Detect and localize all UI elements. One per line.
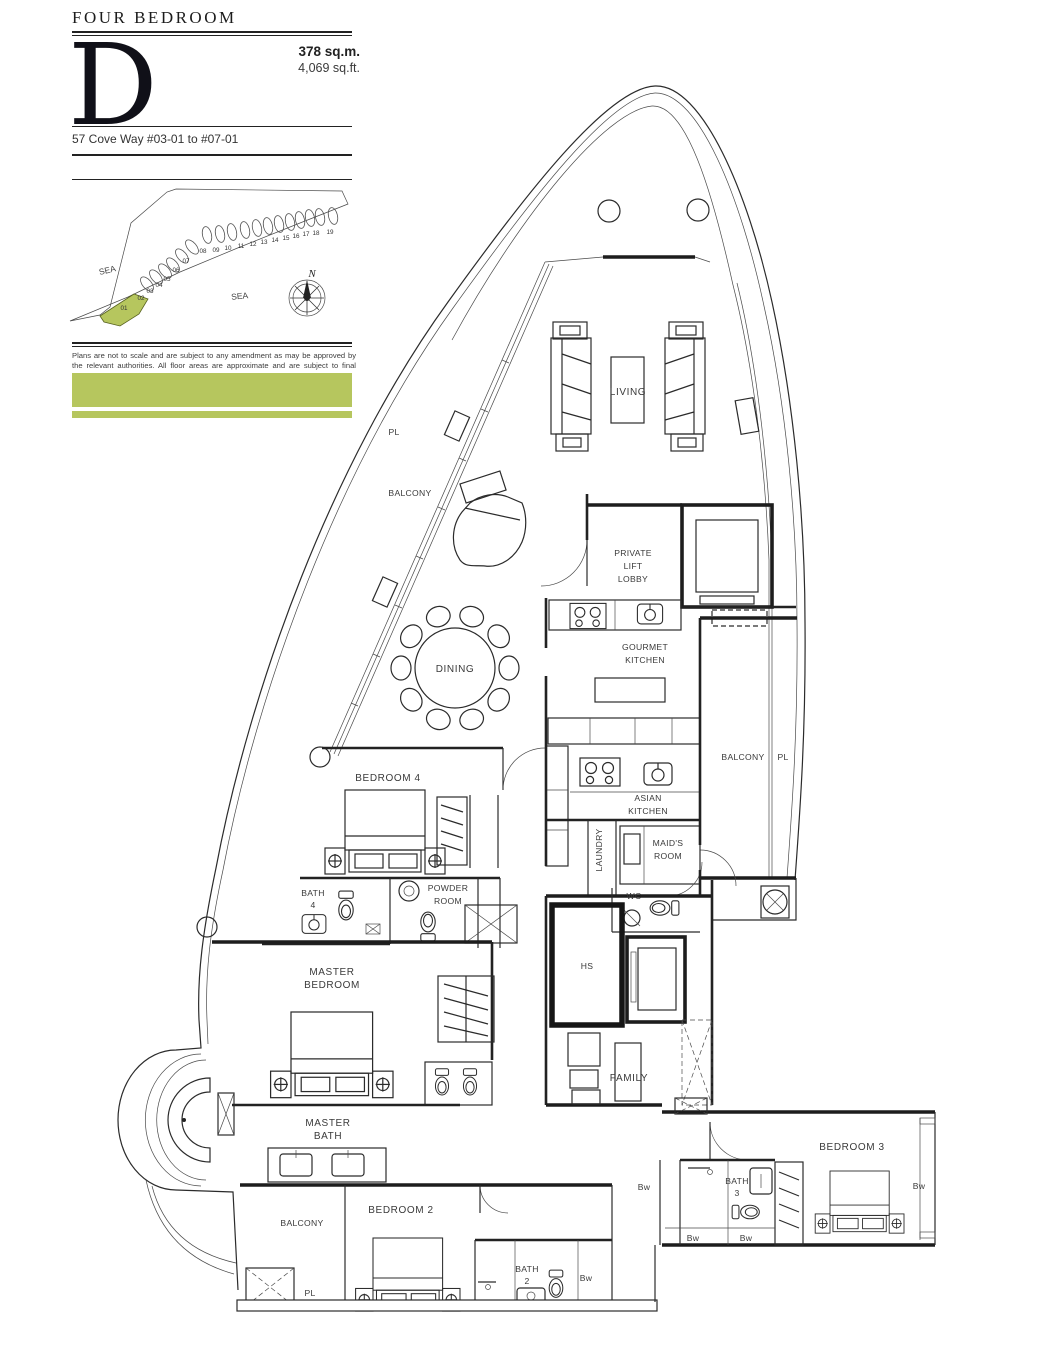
label-living: LIVING — [610, 387, 646, 398]
sea-label-left: SEA — [98, 263, 117, 277]
unit-number: 19 — [326, 229, 334, 236]
lift-lobby — [541, 494, 796, 626]
label-bw: Bw — [687, 1233, 700, 1243]
label-family: FAMILY — [610, 1073, 648, 1084]
label-bedroom3: BEDROOM 3 — [819, 1142, 884, 1153]
unit-number: 03 — [146, 288, 154, 295]
room-labels: LIVING PRIVATE LIFT LOBBY GOURMET KITCHE… — [280, 387, 925, 1298]
label-hs: HS — [581, 961, 594, 971]
balcony-rail2 — [737, 283, 772, 878]
sea-label-right: SEA — [231, 290, 249, 302]
svg-text:4: 4 — [310, 900, 315, 910]
unit-number: 12 — [249, 241, 257, 248]
unit-number: 17 — [302, 231, 310, 238]
site-map: 01 02 03 04 05 06 07 08 09 10 11 12 13 1… — [70, 189, 348, 326]
label-bedroom4: BEDROOM 4 — [355, 773, 420, 784]
label-pl-bottom: PL — [304, 1288, 315, 1298]
svg-text:KITCHEN: KITCHEN — [625, 655, 665, 665]
label-balcony-right: BALCONY — [721, 752, 764, 762]
svg-text:ROOM: ROOM — [654, 851, 682, 861]
svg-text:LOBBY: LOBBY — [618, 574, 648, 584]
unit-number: 09 — [212, 247, 220, 254]
label-master-bath: MASTER — [305, 1118, 350, 1129]
label-bw: Bw — [638, 1182, 651, 1192]
svg-text:3: 3 — [734, 1188, 739, 1198]
bath4-powder — [262, 878, 517, 948]
accent-bar-thin — [72, 411, 352, 418]
label-bath4: BATH — [301, 888, 324, 898]
label-bath2: BATH — [515, 1264, 538, 1274]
unit-number: 05 — [163, 276, 171, 283]
accent-bar-thick — [72, 373, 352, 407]
floor-plan-brochure-page: FOUR BEDROOM D 378 sq.m. 4,069 sq.ft. 57… — [0, 0, 1044, 1370]
second-lift — [627, 937, 685, 1022]
unit-number: 18 — [312, 230, 320, 237]
bottom-rooms — [237, 1185, 657, 1311]
svg-text:BATH: BATH — [314, 1131, 342, 1142]
site-boundary — [70, 189, 348, 321]
unit-number: 04 — [155, 282, 163, 289]
label-balcony-bottom: BALCONY — [280, 1218, 323, 1228]
bedroom4 — [300, 748, 545, 878]
bath3 — [660, 1160, 803, 1245]
label-bw: Bw — [740, 1233, 753, 1243]
svg-text:KITCHEN: KITCHEN — [628, 806, 668, 816]
label-laundry: LAUNDRY — [594, 828, 604, 871]
label-master-bedroom: MASTER — [309, 967, 354, 978]
inner-curtain-wall — [452, 106, 733, 340]
core-walls — [500, 598, 546, 948]
bedroom3-wing — [662, 1098, 935, 1245]
drawing-canvas: 01 02 03 04 05 06 07 08 09 10 11 12 13 1… — [0, 0, 1044, 1370]
label-gourmet-kitchen: GOURMET — [622, 642, 668, 652]
label-pl-right: PL — [777, 752, 788, 762]
label-asian-kitchen: ASIAN — [634, 793, 661, 803]
master-bath — [168, 1078, 386, 1182]
balcony-rail — [733, 285, 769, 878]
label-bw: Bw — [913, 1181, 926, 1191]
svg-text:LIFT: LIFT — [624, 561, 643, 571]
unit-number: 10 — [224, 245, 232, 252]
label-bath3: BATH — [725, 1176, 748, 1186]
unit-number: 07 — [182, 258, 190, 265]
unit-number: 16 — [292, 233, 300, 240]
unit-number: 01 — [120, 305, 128, 312]
unit-number: 11 — [238, 243, 245, 250]
label-bw: Bw — [580, 1273, 593, 1283]
label-dining: DINING — [436, 664, 475, 675]
label-bedroom2: BEDROOM 2 — [368, 1205, 433, 1216]
svg-text:2: 2 — [524, 1276, 529, 1286]
label-powder-room: POWDER — [428, 883, 468, 893]
unit-number: 08 — [199, 248, 207, 255]
unit-number: 15 — [282, 235, 290, 242]
unit-number: 06 — [172, 267, 180, 274]
svg-text:BEDROOM: BEDROOM — [304, 980, 360, 991]
living-walls — [545, 257, 710, 262]
unit-number: 02 — [137, 295, 145, 302]
north-label: N — [307, 268, 316, 280]
label-pl-upper: PL — [388, 427, 399, 437]
label-maids-room: MAID'S — [653, 838, 684, 848]
label-balcony-upper: BALCONY — [388, 488, 431, 498]
right-balcony — [700, 618, 797, 920]
floor-plan: LIVING PRIVATE LIFT LOBBY GOURMET KITCHE… — [118, 86, 935, 1311]
family-area — [546, 880, 712, 1105]
label-lift-lobby: PRIVATE — [614, 548, 652, 558]
label-wc: WC — [627, 891, 642, 901]
compass-rose: N — [289, 268, 325, 316]
grand-piano — [453, 471, 525, 566]
unit-number: 13 — [260, 239, 268, 246]
unit-number: 14 — [271, 237, 279, 244]
svg-text:ROOM: ROOM — [434, 896, 462, 906]
